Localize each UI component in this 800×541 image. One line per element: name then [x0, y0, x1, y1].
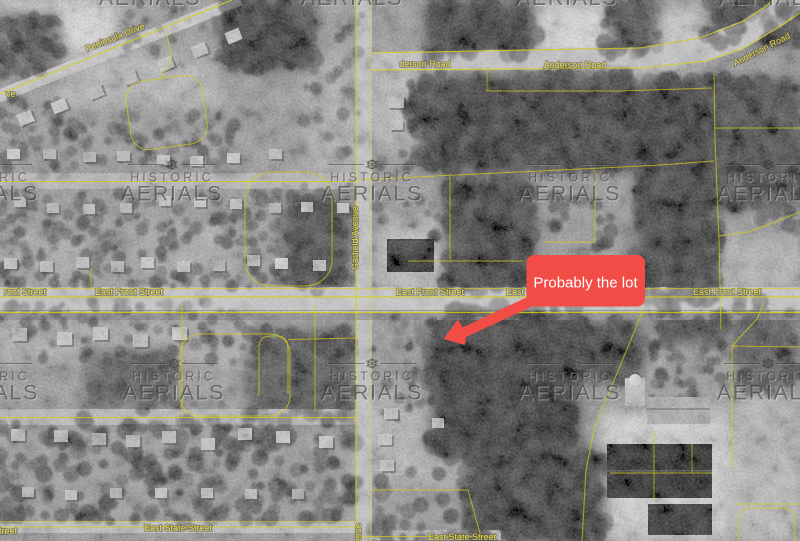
svg-text:Garfield Avenue: Garfield Avenue [350, 206, 360, 270]
svg-text:East Front Street: East Front Street [396, 287, 465, 297]
svg-text:East State Street: East State Street [144, 523, 213, 533]
svg-text:AERIALS: AERIALS [519, 381, 621, 405]
svg-text:East State Street: East State Street [428, 532, 497, 541]
svg-text:AERIALS: AERIALS [121, 182, 223, 206]
svg-text:AERIALS: AERIALS [516, 0, 618, 10]
svg-text:derson Road: derson Road [399, 59, 451, 69]
svg-text:AERIALS: AERIALS [0, 182, 39, 206]
svg-text:AERIALS: AERIALS [123, 381, 225, 405]
svg-text:AERIALS: AERIALS [717, 182, 800, 206]
svg-text:East Front Street: East Front Street [95, 287, 164, 297]
svg-text:ve: ve [6, 89, 16, 99]
svg-text:Probably the lot: Probably the lot [533, 275, 638, 292]
svg-text:treet: treet [0, 526, 18, 536]
svg-text:ront Street: ront Street [4, 287, 47, 297]
svg-text:Anderson Road: Anderson Road [544, 60, 607, 70]
svg-text:AERIALS: AERIALS [99, 0, 201, 10]
svg-text:Garfield Avenue: Garfield Avenue [353, 523, 363, 541]
svg-text:AERIALS: AERIALS [719, 0, 800, 10]
svg-text:AERIALS: AERIALS [321, 381, 423, 405]
svg-text:AERIALS: AERIALS [717, 381, 800, 405]
svg-text:AERIALS: AERIALS [519, 182, 621, 206]
svg-text:AERIALS: AERIALS [321, 182, 423, 206]
svg-text:AERIALS: AERIALS [301, 0, 403, 10]
svg-text:East Front Street: East Front Street [693, 287, 762, 297]
svg-text:AERIALS: AERIALS [0, 381, 39, 405]
